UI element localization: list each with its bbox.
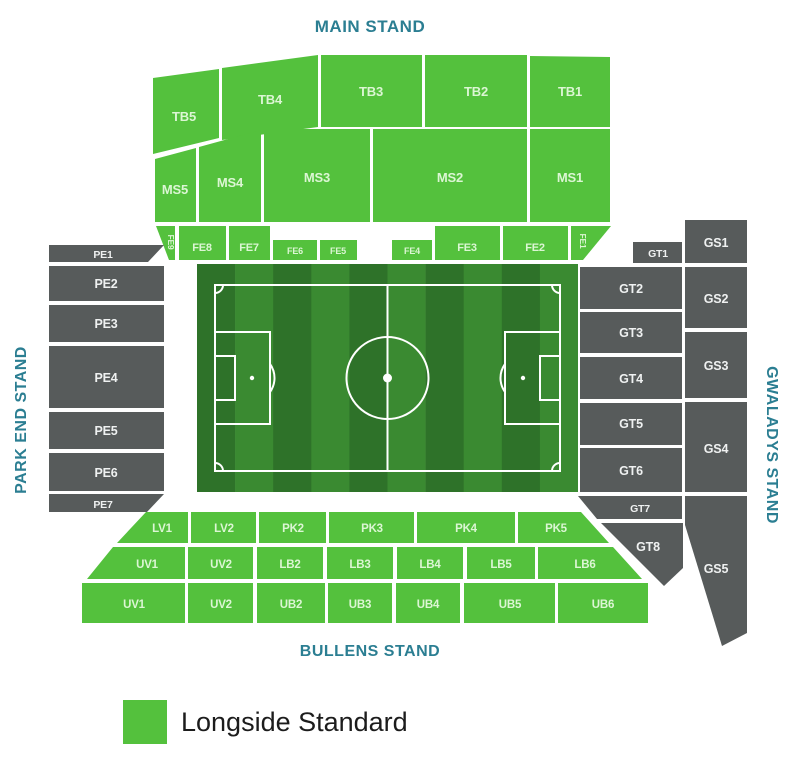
section-label-pk5: PK5 xyxy=(545,523,568,535)
section-fe2[interactable]: FE2 xyxy=(503,226,568,260)
section-ub4[interactable]: UB4 xyxy=(396,583,460,623)
section-lv2[interactable]: LV2 xyxy=(191,512,256,543)
pitch-stripe xyxy=(311,264,349,492)
stadium-seat-map-page: MAIN STAND BULLENS STAND PARK END STAND … xyxy=(0,0,798,766)
section-label-gs5: GS5 xyxy=(704,562,729,576)
section-label-fe3: FE3 xyxy=(457,242,477,254)
centre-spot xyxy=(383,374,392,383)
section-label-ms3: MS3 xyxy=(304,170,330,185)
section-label-fe2: FE2 xyxy=(525,242,545,254)
section-label-gt2: GT2 xyxy=(619,282,643,296)
section-pe4[interactable]: PE4 xyxy=(49,346,164,408)
section-gt6[interactable]: GT6 xyxy=(580,448,682,492)
section-fe1[interactable]: FE1 xyxy=(571,226,611,260)
section-gt7[interactable]: GT7 xyxy=(578,496,682,519)
section-ub3[interactable]: UB3 xyxy=(328,583,392,623)
pitch-stripe xyxy=(197,264,235,492)
section-label-pk2: PK2 xyxy=(282,523,304,535)
section-label-uv1-lower: UV1 xyxy=(123,599,146,611)
legend-label: Longside Standard xyxy=(181,707,408,738)
section-label-gt8: GT8 xyxy=(636,540,660,554)
section-uv1-lower[interactable]: UV1 xyxy=(82,583,185,623)
section-label-lv2: LV2 xyxy=(214,523,234,535)
section-gs2[interactable]: GS2 xyxy=(685,267,747,328)
section-label-fe4: FE4 xyxy=(404,246,420,256)
section-ub2[interactable]: UB2 xyxy=(257,583,325,623)
section-uv2-lower[interactable]: UV2 xyxy=(188,583,253,623)
section-tb2[interactable]: TB2 xyxy=(425,55,527,127)
section-fe8[interactable]: FE8 xyxy=(179,226,226,260)
section-lb3[interactable]: LB3 xyxy=(327,547,393,579)
section-lb4[interactable]: LB4 xyxy=(397,547,463,579)
left-penalty-spot xyxy=(250,376,254,380)
section-label-gt4: GT4 xyxy=(619,372,643,386)
section-label-ub2: UB2 xyxy=(280,599,302,611)
section-label-gt6: GT6 xyxy=(619,464,643,478)
section-label-ub4: UB4 xyxy=(417,599,440,611)
section-fe3[interactable]: FE3 xyxy=(435,226,500,260)
section-label-gs1: GS1 xyxy=(704,236,729,250)
section-label-uv2-lower: UV2 xyxy=(210,599,232,611)
section-label-fe8: FE8 xyxy=(192,242,212,254)
section-pe1[interactable]: PE1 xyxy=(49,245,164,262)
section-label-pe4: PE4 xyxy=(94,371,117,385)
section-label-ms2: MS2 xyxy=(437,170,463,185)
section-label-pe7: PE7 xyxy=(93,499,113,511)
section-ub5[interactable]: UB5 xyxy=(464,583,555,623)
section-label-fe5: FE5 xyxy=(330,246,346,256)
section-label-lb6: LB6 xyxy=(574,559,595,571)
section-pk2[interactable]: PK2 xyxy=(259,512,326,543)
section-label-lv1: LV1 xyxy=(152,523,172,535)
pitch-stripe xyxy=(464,264,502,492)
section-ms5[interactable]: MS5 xyxy=(155,148,196,222)
section-label-lb3: LB3 xyxy=(349,559,370,571)
section-label-lb4: LB4 xyxy=(419,559,441,571)
section-label-ms5: MS5 xyxy=(162,182,188,197)
section-label-fe1: FE1 xyxy=(578,234,588,249)
section-label-lb2: LB2 xyxy=(279,559,300,571)
section-label-fe7: FE7 xyxy=(239,242,259,254)
section-label-gs4: GS4 xyxy=(704,442,729,456)
section-label-tb3: TB3 xyxy=(359,84,383,99)
stadium-map-svg: TB5TB4TB3TB2TB1MS5MS4MS3MS2MS1FE9FE8FE7F… xyxy=(0,0,798,766)
pitch-stripe xyxy=(273,264,311,492)
pitch xyxy=(197,264,578,492)
section-label-tb1: TB1 xyxy=(558,84,582,99)
section-gs5[interactable]: GS5 xyxy=(685,496,747,646)
section-label-pe5: PE5 xyxy=(94,424,117,438)
section-pe5[interactable]: PE5 xyxy=(49,412,164,449)
section-uv2-upper[interactable]: UV2 xyxy=(188,547,253,579)
right-penalty-spot xyxy=(521,376,525,380)
section-pk4[interactable]: PK4 xyxy=(417,512,515,543)
section-gt2[interactable]: GT2 xyxy=(580,267,682,309)
section-label-gt1: GT1 xyxy=(648,248,668,260)
section-label-pk4: PK4 xyxy=(455,523,478,535)
section-label-pe6: PE6 xyxy=(94,466,117,480)
section-gs1[interactable]: GS1 xyxy=(685,220,747,263)
section-label-ms1: MS1 xyxy=(557,170,583,185)
section-lb5[interactable]: LB5 xyxy=(467,547,535,579)
section-pk3[interactable]: PK3 xyxy=(329,512,414,543)
section-fe4[interactable]: FE4 xyxy=(392,240,432,260)
section-label-pe2: PE2 xyxy=(94,277,117,291)
section-label-gt5: GT5 xyxy=(619,417,643,431)
section-label-gs3: GS3 xyxy=(704,359,729,373)
section-label-ub3: UB3 xyxy=(349,599,371,611)
section-label-tb4: TB4 xyxy=(258,92,283,107)
legend: Longside Standard xyxy=(123,700,408,744)
section-pe2[interactable]: PE2 xyxy=(49,266,164,301)
pitch-stripe xyxy=(388,264,426,492)
section-gt5[interactable]: GT5 xyxy=(580,403,682,445)
section-fe7[interactable]: FE7 xyxy=(229,226,270,260)
section-label-tb2: TB2 xyxy=(464,84,488,99)
section-pe3[interactable]: PE3 xyxy=(49,305,164,342)
section-ms2[interactable]: MS2 xyxy=(373,129,527,222)
section-lb2[interactable]: LB2 xyxy=(257,547,323,579)
section-ub6[interactable]: UB6 xyxy=(558,583,648,623)
section-gt1[interactable]: GT1 xyxy=(633,242,682,263)
section-tb5[interactable]: TB5 xyxy=(153,69,219,154)
section-tb3[interactable]: TB3 xyxy=(321,55,422,127)
section-fe9[interactable]: FE9 xyxy=(156,226,176,260)
section-label-ms4: MS4 xyxy=(217,175,244,190)
section-label-ub5: UB5 xyxy=(499,599,522,611)
section-lb6[interactable]: LB6 xyxy=(538,547,642,579)
section-lv1[interactable]: LV1 xyxy=(117,512,188,543)
legend-swatch-longside-standard xyxy=(123,700,167,744)
section-fe5[interactable]: FE5 xyxy=(320,240,357,260)
section-label-tb5: TB5 xyxy=(172,109,196,124)
section-label-ub6: UB6 xyxy=(592,599,614,611)
section-label-uv2-upper: UV2 xyxy=(210,559,232,571)
section-pe7[interactable]: PE7 xyxy=(49,494,164,512)
section-label-gt3: GT3 xyxy=(619,326,643,340)
section-fe6[interactable]: FE6 xyxy=(273,240,317,260)
pitch-stripe xyxy=(426,264,464,492)
section-tb4[interactable]: TB4 xyxy=(222,55,318,140)
section-tb1[interactable]: TB1 xyxy=(530,56,610,127)
section-gs3[interactable]: GS3 xyxy=(685,332,747,398)
section-gt3[interactable]: GT3 xyxy=(580,312,682,353)
section-label-fe6: FE6 xyxy=(287,246,303,256)
section-label-lb5: LB5 xyxy=(490,559,512,571)
section-label-gs2: GS2 xyxy=(704,292,729,306)
section-label-fe9: FE9 xyxy=(166,235,176,250)
section-label-pe1: PE1 xyxy=(93,249,113,261)
section-shape-fe1[interactable] xyxy=(571,226,611,260)
section-uv1-upper[interactable]: UV1 xyxy=(87,547,185,579)
section-label-pe3: PE3 xyxy=(94,317,117,331)
pitch-stripe xyxy=(235,264,273,492)
section-label-pk3: PK3 xyxy=(361,523,383,535)
section-pe6[interactable]: PE6 xyxy=(49,453,164,491)
section-ms3[interactable]: MS3 xyxy=(264,129,370,222)
section-label-gt7: GT7 xyxy=(630,503,650,515)
pitch-stripe xyxy=(349,264,387,492)
section-ms4[interactable]: MS4 xyxy=(199,130,261,222)
section-gt4[interactable]: GT4 xyxy=(580,357,682,399)
section-ms1[interactable]: MS1 xyxy=(530,129,610,222)
section-label-uv1-upper: UV1 xyxy=(136,559,159,571)
section-gs4[interactable]: GS4 xyxy=(685,402,747,492)
